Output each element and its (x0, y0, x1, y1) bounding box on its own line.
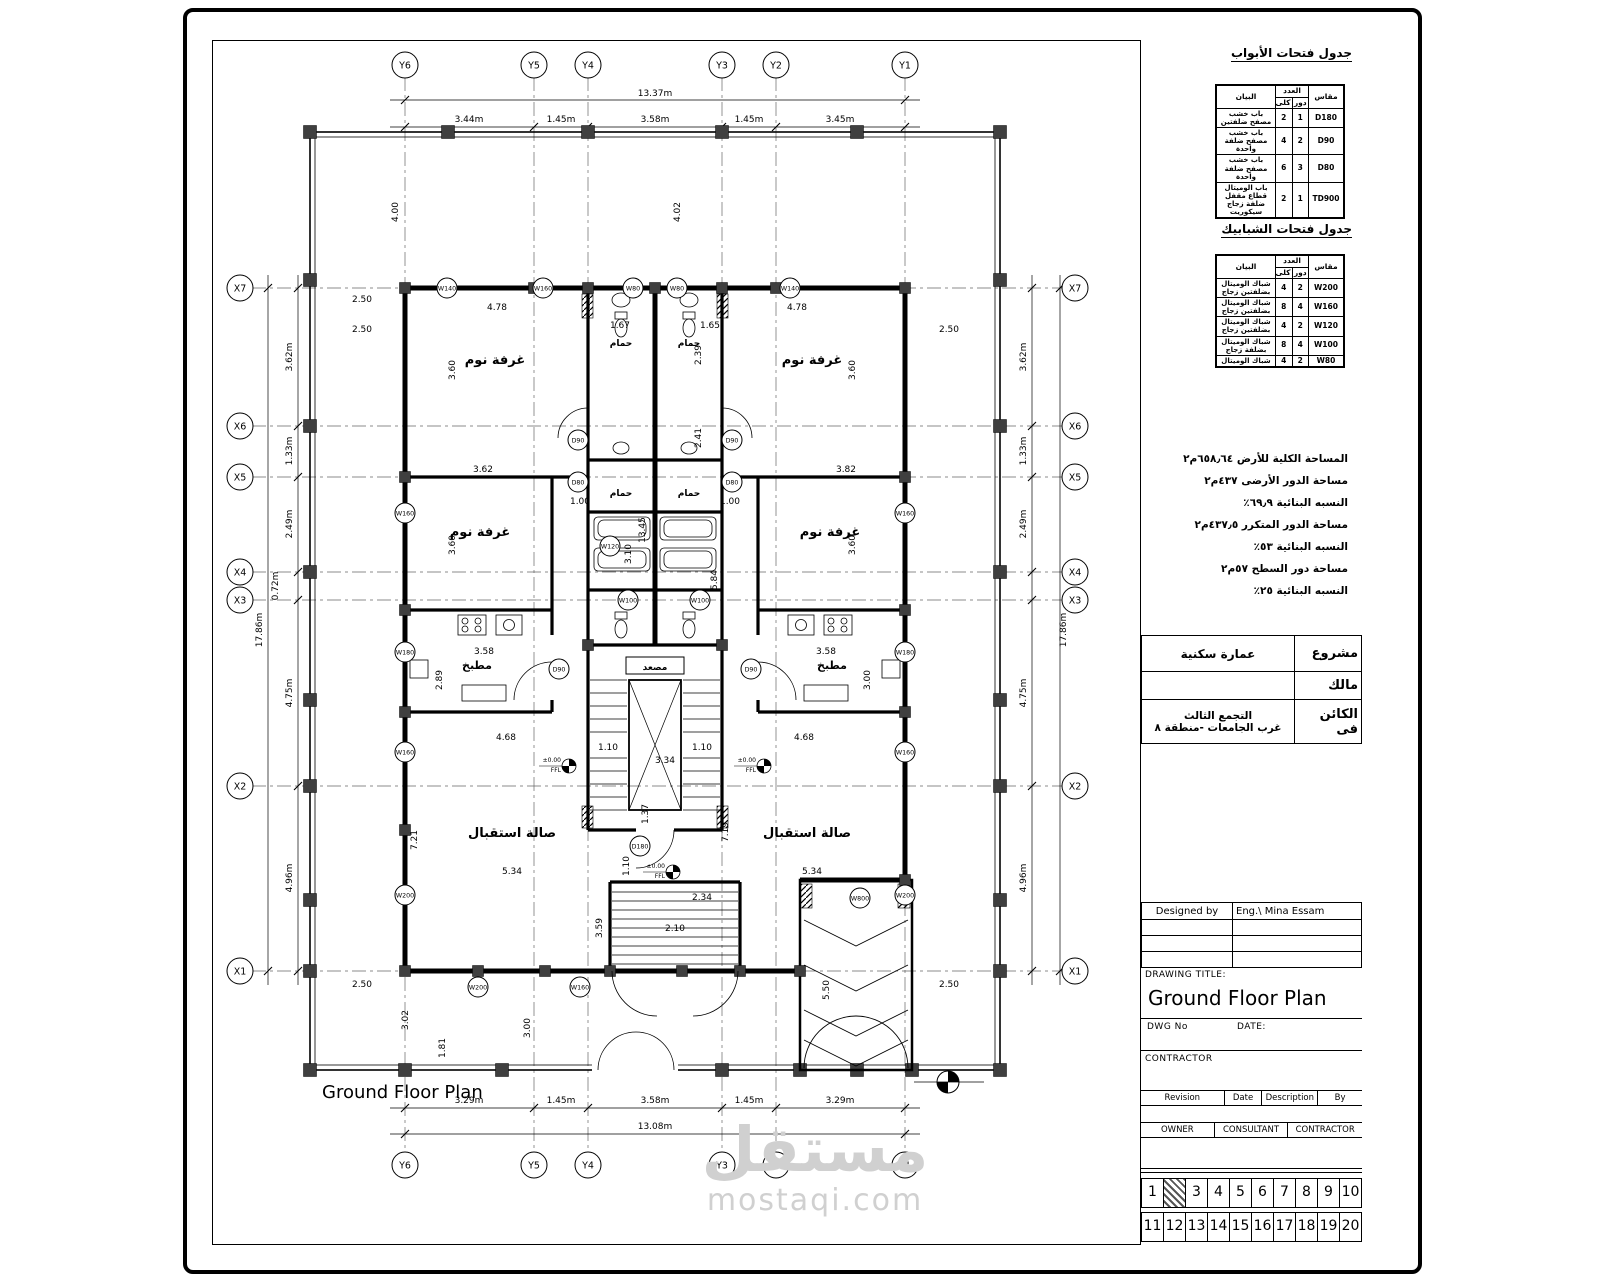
door-desc: باب خشب مصفح ضلفة واحدة (1216, 128, 1276, 155)
level-name: FFL (551, 767, 562, 774)
table-row: D8036باب خشب مصفح ضلفة واحدة (1216, 155, 1344, 182)
room-label-kitchen: مطبخ (462, 659, 492, 672)
window-tag: W200 (896, 893, 914, 900)
level-value: ±0.00 (738, 757, 757, 764)
level-name: FFL (655, 873, 666, 880)
door-n1: 1 (1292, 109, 1309, 128)
room-label-bath: حمام (610, 339, 633, 349)
dim-label: 1.81 (438, 1038, 448, 1058)
dim-label: 17.86m (1059, 613, 1069, 648)
grid-bubble-label: Y4 (581, 1161, 594, 1172)
window-schedule-title: جدول فتحات الشبابيك (1221, 222, 1352, 238)
door-desc: باب الوميتال قطاع مقفل ضلفة زجاج سيكوريت (1216, 182, 1276, 218)
dim-label: 2.50 (352, 980, 372, 990)
dim-label: 3.59 (595, 918, 605, 938)
dim-label: 1.10 (598, 743, 618, 753)
dim-label: 2.89 (435, 670, 445, 690)
stat-line: النسبه البنائية ٥٣٪ (1153, 540, 1348, 555)
door-n1: 1 (1292, 182, 1309, 218)
window-n2: 4 (1276, 355, 1293, 367)
dim-label: 1.33m (1019, 437, 1029, 466)
window-desc: شباك الوميتال بضلفتين زجاج (1216, 279, 1276, 298)
strip-cell: 19 (1318, 1213, 1340, 1241)
room-label-bedroom: غرفة نوم (782, 353, 842, 368)
grid-bubble-label: X5 (1069, 473, 1082, 484)
grid-bubble-label: X7 (1069, 284, 1082, 295)
dim-label: 3.29m (826, 1096, 855, 1106)
level-marker: ±0.00 FFL (734, 757, 771, 774)
revision-header-row: Revision Date Description By (1141, 1090, 1362, 1106)
dim-label: 3.60 (848, 535, 858, 555)
door-tag: D80 (572, 480, 585, 487)
table-row: W20024شباك الوميتال بضلفتين زجاج (1216, 279, 1344, 298)
table-row: W8024شباك الوميتال (1216, 355, 1344, 367)
stat-line: مساحة الدور المتكرر ٤٣٧٫٥م٢ (1153, 518, 1348, 533)
strip-cell: 4 (1208, 1179, 1230, 1207)
door-n2: 4 (1276, 128, 1293, 155)
level-marker: ±0.00 FFL (643, 863, 680, 880)
contractor-header: CONTRACTOR (1288, 1123, 1362, 1137)
window-col-sub2: كلى (1276, 267, 1293, 279)
window-tag: W200 (469, 985, 487, 992)
grid-bubble-label: Y5 (527, 1161, 540, 1172)
dim-label: 4.78 (487, 303, 507, 313)
window-size: W80 (1309, 355, 1345, 367)
window-desc: شباك الوميتال بضلفة زجاج (1216, 336, 1276, 355)
dim-label: 3.62m (1019, 343, 1029, 372)
door-n1: 2 (1292, 128, 1309, 155)
grid-bubble-label: X3 (1069, 596, 1082, 607)
window-n2: 4 (1276, 317, 1293, 336)
dim-label: 5.34 (502, 867, 522, 877)
window-tag: W140 (438, 286, 456, 293)
ramp (804, 920, 908, 1068)
window-desc: شباك الوميتال بضلفتين زجاج (1216, 298, 1276, 317)
owner-label: مالك (1295, 672, 1362, 700)
level-value: ±0.00 (543, 757, 562, 764)
door-tag: D90 (745, 667, 758, 674)
project-value: عمارة سكنية (1142, 636, 1295, 672)
consultant-header: CONSULTANT (1215, 1123, 1289, 1137)
room-label-reception: صالة استقبال (468, 826, 556, 841)
strip-cell: 14 (1208, 1213, 1230, 1241)
north-level-symbol (914, 1071, 984, 1093)
sheet-number-strip-2: 11 12 13 14 15 16 17 18 19 20 (1141, 1212, 1362, 1242)
window-desc: شباك الوميتال (1216, 355, 1276, 367)
dim-label: 3.60 (848, 360, 858, 380)
dim-label: 1.37 (641, 804, 651, 824)
dim-label: 3.10 (624, 544, 634, 564)
door-tag: D90 (572, 438, 585, 445)
door-schedule-table: مقاس العدد البيان دور كلى D18012باب خشب … (1215, 84, 1345, 219)
door-n2: 2 (1276, 109, 1293, 128)
dim-label: 4.75m (285, 679, 295, 708)
building-partitions (405, 288, 912, 1070)
window-col-group: العدد (1276, 255, 1309, 267)
strip-cell: 15 (1230, 1213, 1252, 1241)
window-n1: 2 (1292, 317, 1309, 336)
dim-label: 1.10 (622, 856, 632, 876)
door-tag: D90 (553, 667, 566, 674)
window-n1: 4 (1292, 336, 1309, 355)
dim-label: 2.49m (285, 510, 295, 539)
owner-header: OWNER (1141, 1123, 1215, 1137)
location-label: الكائن فى (1295, 700, 1362, 744)
contractor-label: CONTRACTOR (1145, 1054, 1213, 1064)
grid-bubble-label: Y6 (398, 1161, 411, 1172)
grid-bubble-label: X3 (234, 596, 247, 607)
stat-line: مساحة دور السطح ٥٧م٢ (1153, 562, 1348, 577)
dim-label: 1.67 (610, 321, 630, 331)
dim-label: 3.34 (655, 756, 675, 766)
dim-label: 1.45m (547, 115, 576, 125)
dim-label: 1.45m (735, 115, 764, 125)
window-n2: 4 (1276, 279, 1293, 298)
strip-cell: 6 (1252, 1179, 1274, 1207)
strip-cell: 9 (1318, 1179, 1340, 1207)
window-n1: 2 (1292, 279, 1309, 298)
dim-label: 13.08m (638, 1122, 673, 1132)
door-size: D180 (1309, 109, 1345, 128)
dim-label: 7.21 (410, 830, 420, 850)
designer-name: Eng.\ Mina Essam (1233, 903, 1362, 920)
grid-bubble-label: X6 (234, 422, 247, 433)
grid-bubble-label: Y6 (398, 61, 411, 72)
grid-bubble-label: Y2 (769, 1161, 782, 1172)
dim-label: 2.10 (665, 924, 685, 934)
designer-table: Designed by Eng.\ Mina Essam (1141, 902, 1362, 968)
stair-core (590, 657, 738, 964)
window-n2: 8 (1276, 298, 1293, 317)
window-n1: 2 (1292, 355, 1309, 367)
window-col-size: مقاس (1309, 255, 1345, 279)
project-label: مشروع (1295, 636, 1362, 672)
dim-label: 3.58m (641, 115, 670, 125)
dim-label: 7.19 (721, 822, 731, 842)
room-label-bath: حمام (678, 489, 701, 499)
area-statistics: المساحة الكلية للأرض ٦٥٨٫٦٤م٢ مساحة الدو… (1153, 452, 1348, 606)
dim-label: 1.45m (547, 1096, 576, 1106)
dim-label: 17.86m (255, 613, 265, 648)
table-row: D18012باب خشب مصفح ضلفتين (1216, 109, 1344, 128)
by-label: By (1318, 1091, 1362, 1105)
window-tag: W80 (626, 286, 640, 293)
window-tag: W160 (571, 985, 589, 992)
table-row: W16048شباك الوميتال بضلفتين زجاج (1216, 298, 1344, 317)
plan-caption: Ground Floor Plan (322, 1082, 483, 1103)
designed-by-label: Designed by (1142, 903, 1233, 920)
window-tag: W160 (396, 511, 414, 518)
window-tag: W180 (396, 650, 414, 657)
parties-header-row: OWNER CONSULTANT CONTRACTOR (1141, 1122, 1362, 1138)
grid-bubble-label: X5 (234, 473, 247, 484)
door-n2: 2 (1276, 182, 1293, 218)
owner-value (1142, 672, 1295, 700)
floor-plan-drawing: ±0.00 FFL ±0.00 FFL ±0.00 FFL Y6 Y5 Y4 Y… (212, 40, 1140, 1245)
grid-bubble-label: X2 (234, 782, 247, 793)
dim-label: 3.62 (473, 465, 493, 475)
grid-bubble-label: Y5 (527, 61, 540, 72)
window-desc: شباك الوميتال بضلفتين زجاج (1216, 317, 1276, 336)
title-block-panel: جدول فتحات الأبواب مقاس العدد البيان دور… (1140, 40, 1362, 1245)
window-size: W100 (1309, 336, 1345, 355)
dim-label: 4.00 (391, 202, 401, 222)
strip-cell: 11 (1142, 1213, 1164, 1241)
dim-label: 13.37m (638, 89, 673, 99)
rev-date-label: Date (1225, 1091, 1263, 1105)
window-size: W120 (1309, 317, 1345, 336)
dim-label: 3.00 (863, 670, 873, 690)
dim-label: 3.82 (836, 465, 856, 475)
dim-label: 2.34 (692, 893, 712, 903)
grid-bubble-label: Y3 (715, 1161, 728, 1172)
level-value: ±0.00 (647, 863, 666, 870)
door-desc: باب خشب مصفح ضلفتين (1216, 109, 1276, 128)
dim-label: 4.78 (787, 303, 807, 313)
window-col-desc: البيان (1216, 255, 1276, 279)
location-line1: التجمع الثالث (1145, 710, 1291, 722)
strip-cell-hatched: 2 (1164, 1179, 1186, 1207)
dim-label: 3.45m (826, 115, 855, 125)
door-size: D90 (1309, 128, 1345, 155)
room-label-reception: صالة استقبال (763, 826, 851, 841)
dim-label: 4.75m (1019, 679, 1029, 708)
grid-bubble-label: X1 (1069, 967, 1082, 978)
window-tag: W80 (670, 286, 684, 293)
door-tag: D180 (632, 844, 649, 851)
grid-bubble-label: X6 (1069, 422, 1082, 433)
dim-label: 13.45 (638, 517, 648, 543)
dim-label: 3.58 (474, 647, 494, 657)
dim-label: 2.50 (939, 325, 959, 335)
door-col-desc: البيان (1216, 85, 1276, 109)
table-row: D9024باب خشب مصفح ضلفة واحدة (1216, 128, 1344, 155)
window-tag: W160 (896, 750, 914, 757)
dim-label: 4.68 (794, 733, 814, 743)
door-col-sub2: كلى (1276, 97, 1293, 109)
window-tag: W100 (619, 598, 637, 605)
dim-label: 1.33m (285, 437, 295, 466)
strip-cell: 13 (1186, 1213, 1208, 1241)
dim-label: 4.96m (285, 864, 295, 893)
grid-bubble-label: X2 (1069, 782, 1082, 793)
location-line2: غرب الجامعات -منطقة ٨ (1145, 722, 1291, 734)
grid-bubble-label: Y1 (898, 1161, 911, 1172)
level-marker: ±0.00 FFL (539, 757, 576, 774)
dim-label: 1.10 (692, 743, 712, 753)
strip-cell: 16 (1252, 1213, 1274, 1241)
stat-line: المساحة الكلية للأرض ٦٥٨٫٦٤م٢ (1153, 452, 1348, 467)
grid-bubble-label: Y4 (581, 61, 594, 72)
grid-bubble-label: Y1 (898, 61, 911, 72)
drawing-title-label: DRAWING TITLE: (1145, 970, 1226, 980)
dim-label: 3.02 (401, 1010, 411, 1030)
dimension-labels: 13.37m 3.44m 1.45m 3.58m 1.45m 3.45m 3.2… (255, 89, 1069, 1132)
window-n1: 4 (1292, 298, 1309, 317)
table-row: W10048شباك الوميتال بضلفة زجاج (1216, 336, 1344, 355)
stat-line: مساحة الدور الأرضى ٤٣٧م٢ (1153, 474, 1348, 489)
door-size: TD900 (1309, 182, 1345, 218)
window-tag: W100 (691, 598, 709, 605)
strip-cell: 7 (1274, 1179, 1296, 1207)
dwg-no-label: DWG No (1147, 1022, 1188, 1032)
dim-label: 2.50 (939, 980, 959, 990)
stat-line: النسبه البنائية ٢٥٪ (1153, 584, 1348, 599)
dim-label: 1.65 (700, 321, 720, 331)
dim-label: 3.60 (448, 535, 458, 555)
table-row: TD90012باب الوميتال قطاع مقفل ضلفة زجاج … (1216, 182, 1344, 218)
strip-cell: 3 (1186, 1179, 1208, 1207)
window-tag: W200 (396, 893, 414, 900)
door-schedule-title: جدول فتحات الأبواب (1231, 46, 1352, 62)
dim-label: 2.50 (352, 295, 372, 305)
dim-label: 3.44m (455, 115, 484, 125)
window-size: W200 (1309, 279, 1345, 298)
room-label-kitchen: مطبخ (817, 659, 847, 672)
room-label-bedroom: غرفة نوم (450, 525, 510, 540)
dim-label: 3.62m (285, 343, 295, 372)
window-tag: W160 (396, 750, 414, 757)
level-name: FFL (746, 767, 757, 774)
door-tag: D90 (726, 438, 739, 445)
table-row: W12024شباك الوميتال بضلفتين زجاج (1216, 317, 1344, 336)
strip-cell: 18 (1296, 1213, 1318, 1241)
room-label-bedroom: غرفة نوم (465, 353, 525, 368)
strip-cell: 5 (1230, 1179, 1252, 1207)
dim-label: 5.50 (822, 980, 832, 1000)
window-tag: W160 (896, 511, 914, 518)
door-tag: D80 (726, 480, 739, 487)
dim-label: 4.96m (1019, 864, 1029, 893)
dim-label: 2.41 (694, 428, 704, 448)
window-size: W160 (1309, 298, 1345, 317)
strip-cell: 10 (1340, 1179, 1361, 1207)
dim-label: 2.39 (694, 345, 704, 365)
door-n2: 6 (1276, 155, 1293, 182)
window-tag: W800 (851, 896, 869, 903)
grid-bubble-label: Y2 (769, 61, 782, 72)
strip-cell: 17 (1274, 1213, 1296, 1241)
door-size: D80 (1309, 155, 1345, 182)
grid-bubble-label: X7 (234, 284, 247, 295)
strip-cell: 1 (1142, 1179, 1164, 1207)
door-desc: باب خشب مصفح ضلفة واحدة (1216, 155, 1276, 182)
dim-label: 2.49m (1019, 510, 1029, 539)
window-tag: W180 (896, 650, 914, 657)
revision-label: Revision (1141, 1091, 1225, 1105)
door-col-group: العدد (1276, 85, 1309, 97)
window-tag: W120 (601, 544, 619, 551)
level-markers: ±0.00 FFL ±0.00 FFL ±0.00 FFL (539, 757, 984, 1093)
door-n1: 3 (1292, 155, 1309, 182)
door-col-size: مقاس (1309, 85, 1345, 109)
grid-bubble-label: X1 (234, 967, 247, 978)
dim-label: 1.00 (720, 497, 740, 507)
drawing-sheet: { "plan": { "caption": "Ground Floor Pla… (0, 0, 1600, 1280)
door-col-sub1: دور (1292, 97, 1309, 109)
strip-cell: 12 (1164, 1213, 1186, 1241)
dim-label: 0.72m (271, 572, 281, 601)
window-n2: 8 (1276, 336, 1293, 355)
dim-label: 1.00 (570, 497, 590, 507)
dim-label: 3.58m (641, 1096, 670, 1106)
window-tag: W140 (781, 286, 799, 293)
strip-cell: 20 (1340, 1213, 1361, 1241)
window-schedule-table: مقاس العدد البيان دور كلى W20024شباك الو… (1215, 254, 1345, 368)
grid-bubble-label: X4 (1069, 568, 1082, 579)
description-label: Description (1262, 1091, 1318, 1105)
room-label-bath: حمام (610, 489, 633, 499)
dim-label: 3.00 (523, 1018, 533, 1038)
dim-label: 2.50 (352, 325, 372, 335)
grid-bubble-label: X4 (234, 568, 247, 579)
drawing-title: Ground Floor Plan (1148, 986, 1327, 1010)
dim-label: 3.58 (816, 647, 836, 657)
stat-line: النسبه البنائية ٦٩٫٩٪ (1153, 496, 1348, 511)
strip-cell: 8 (1296, 1179, 1318, 1207)
dim-label: 4.68 (496, 733, 516, 743)
dim-label: 1.45m (735, 1096, 764, 1106)
sheet-number-strip-1: 1 2 3 4 5 6 7 8 9 10 (1141, 1178, 1362, 1208)
room-label-elevator: مصعد (643, 663, 668, 673)
window-col-sub1: دور (1292, 267, 1309, 279)
dim-label: 3.60 (448, 360, 458, 380)
dim-label: 4.02 (673, 202, 683, 222)
project-info-table: مشروع عمارة سكنية مالك الكائن فى التجمع … (1141, 635, 1362, 744)
window-tag: W160 (534, 286, 552, 293)
dim-label: 5.84 (710, 570, 720, 590)
date-label: DATE: (1237, 1022, 1266, 1032)
grid-bubble-label: Y3 (715, 61, 728, 72)
dim-label: 5.34 (802, 867, 822, 877)
